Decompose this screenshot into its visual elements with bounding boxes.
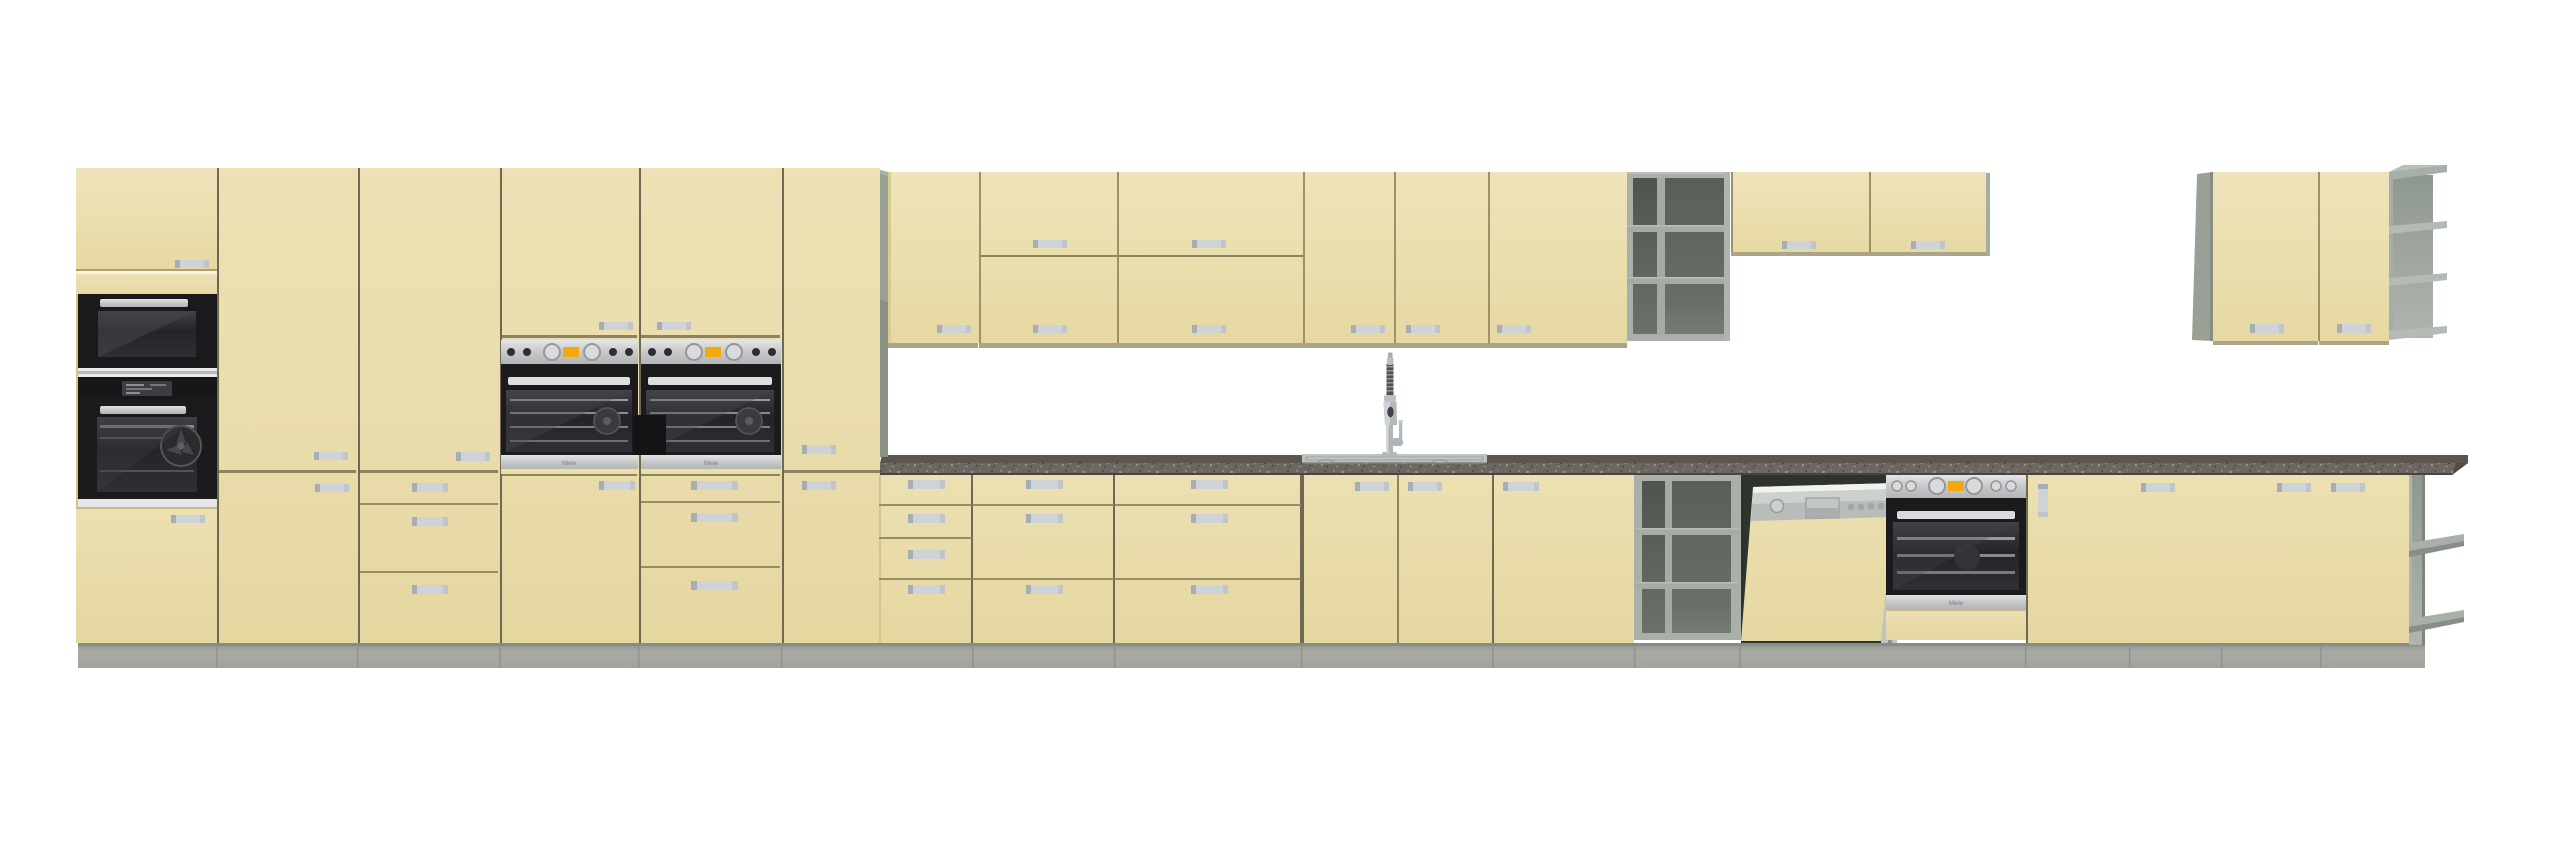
svg-text:Miele: Miele xyxy=(704,461,719,467)
svg-text:Miele: Miele xyxy=(1949,601,1964,607)
svg-text:Miele: Miele xyxy=(562,461,577,467)
